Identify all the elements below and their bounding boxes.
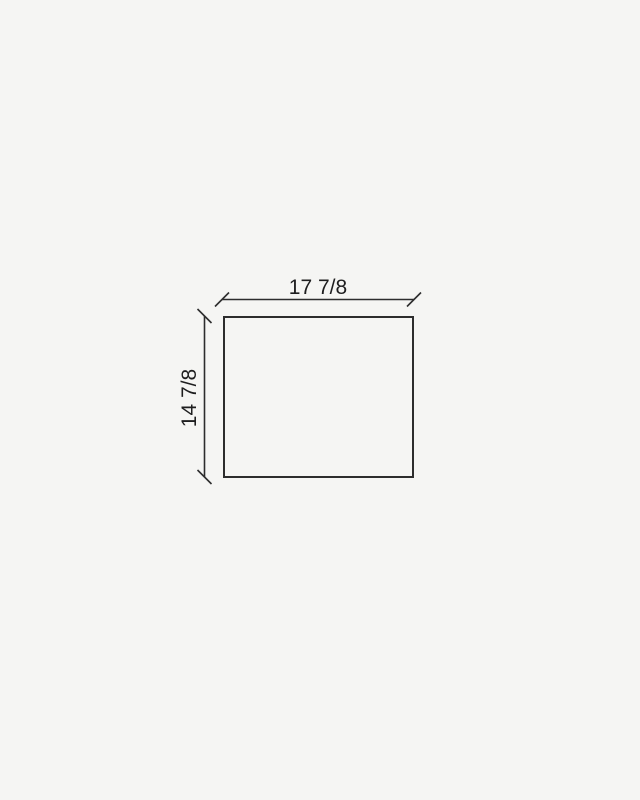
dimension-drawing-canvas: 17 7/8 14 7/8 [0,0,640,800]
height-dimension: 14 7/8 [178,309,212,484]
part-outline [224,317,413,477]
height-dimension-label: 14 7/8 [178,369,201,427]
width-dimension-label: 17 7/8 [289,276,347,299]
width-dimension: 17 7/8 [215,276,421,307]
dimension-drawing: 17 7/8 14 7/8 [0,0,640,800]
